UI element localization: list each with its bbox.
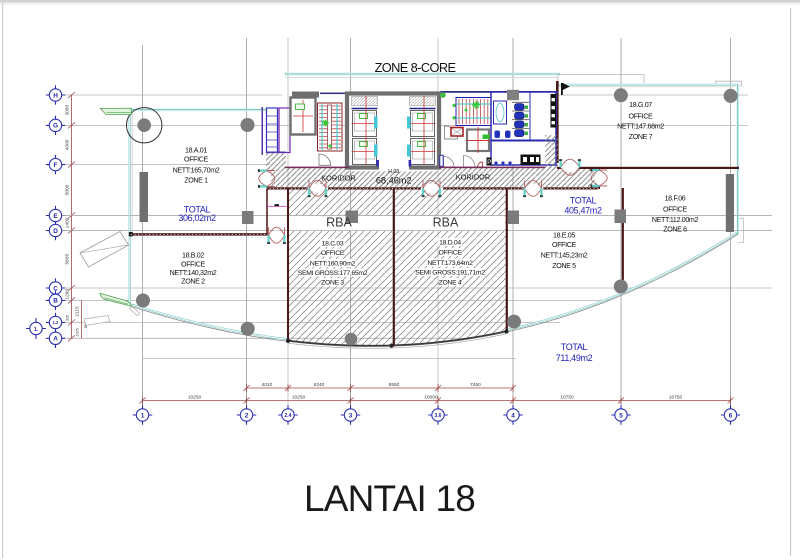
svg-text:SEMI GROSS:191,71m2: SEMI GROSS:191,71m2 — [415, 270, 485, 277]
svg-text:2.4: 2.4 — [285, 413, 292, 419]
svg-text:RBA: RBA — [326, 216, 352, 230]
svg-text:NETT:140,32m2: NETT:140,32m2 — [170, 269, 217, 277]
svg-text:4: 4 — [511, 412, 515, 419]
svg-text:ZONE 4: ZONE 4 — [439, 280, 462, 287]
svg-text:NETT:160,90m2: NETT:160,90m2 — [310, 261, 356, 268]
svg-text:6: 6 — [729, 412, 733, 419]
svg-text:TOTAL: TOTAL — [570, 195, 597, 205]
svg-text:ZONE 8-CORE: ZONE 8-CORE — [375, 60, 456, 75]
svg-text:KORIDOR: KORIDOR — [321, 173, 356, 182]
svg-text:H.08: H.08 — [388, 169, 399, 175]
svg-text:P: P — [487, 160, 491, 166]
svg-text:18.B.02: 18.B.02 — [182, 252, 204, 260]
svg-text:18.E.05: 18.E.05 — [553, 232, 575, 240]
svg-text:2115: 2115 — [75, 306, 81, 317]
svg-text:OFFICE: OFFICE — [663, 205, 688, 213]
svg-text:5000: 5000 — [65, 184, 71, 195]
svg-text:ZONE 7: ZONE 7 — [629, 133, 653, 141]
svg-text:711,49m2: 711,49m2 — [556, 353, 593, 363]
svg-text:RBA: RBA — [433, 216, 459, 230]
svg-text:6240: 6240 — [314, 382, 325, 388]
svg-text:18.F.06: 18.F.06 — [665, 195, 686, 203]
svg-text:10250: 10250 — [292, 395, 306, 401]
svg-text:1: 1 — [141, 412, 145, 419]
svg-text:ZONE 2: ZONE 2 — [181, 278, 205, 286]
svg-text:NETT:112.00m2: NETT:112.00m2 — [652, 216, 699, 224]
svg-text:10250: 10250 — [188, 395, 202, 401]
svg-text:10750: 10750 — [560, 395, 574, 401]
svg-text:18.C.03: 18.C.03 — [322, 241, 344, 248]
svg-text:LANTAI 18: LANTAI 18 — [304, 478, 475, 519]
svg-text:1.2: 1.2 — [53, 320, 59, 325]
svg-text:NETT:147.68m2: NETT:147.68m2 — [617, 123, 664, 131]
svg-text:1290: 1290 — [65, 289, 71, 300]
svg-text:1025: 1025 — [76, 328, 80, 336]
svg-text:OFFICE: OFFICE — [321, 250, 345, 257]
svg-text:NETT:145,23m2: NETT:145,23m2 — [541, 251, 588, 259]
svg-text:3.6: 3.6 — [435, 413, 442, 419]
svg-text:405,47m2: 405,47m2 — [564, 205, 602, 215]
svg-text:1400: 1400 — [65, 217, 71, 228]
svg-text:10750: 10750 — [669, 395, 683, 401]
svg-text:3000: 3000 — [65, 105, 71, 116]
svg-text:ZONE 3: ZONE 3 — [321, 280, 344, 287]
svg-text:ZONE 1: ZONE 1 — [184, 176, 208, 184]
svg-text:18.G.07: 18.G.07 — [629, 101, 652, 109]
svg-text:TOTAL: TOTAL — [561, 342, 588, 352]
svg-text:NETT:165,70m2: NETT:165,70m2 — [173, 167, 220, 175]
svg-text:4000: 4000 — [65, 139, 71, 150]
svg-text:16000: 16000 — [424, 395, 438, 401]
svg-text:F: F — [54, 162, 58, 169]
svg-text:2: 2 — [245, 412, 249, 419]
svg-text:325: 325 — [66, 315, 70, 321]
svg-text:18.A.01: 18.A.01 — [185, 147, 207, 155]
svg-text:4010: 4010 — [262, 382, 273, 388]
svg-text:H: H — [53, 92, 58, 99]
svg-text:5605: 5605 — [65, 254, 71, 265]
svg-text:A: A — [53, 336, 58, 343]
svg-text:E: E — [53, 213, 58, 220]
svg-text:D: D — [53, 228, 58, 235]
svg-text:OFFICE: OFFICE — [181, 260, 206, 268]
svg-text:OFFICE: OFFICE — [184, 156, 209, 164]
svg-text:OFFICE: OFFICE — [629, 112, 654, 120]
svg-text:G: G — [53, 123, 58, 130]
svg-text:68,46m2: 68,46m2 — [376, 176, 412, 186]
svg-text:NETT:173,64m2: NETT:173,64m2 — [427, 260, 473, 267]
svg-text:OFFICE: OFFICE — [438, 250, 462, 257]
svg-text:306,02m2: 306,02m2 — [178, 213, 216, 223]
svg-text:ZONE 5: ZONE 5 — [552, 262, 576, 270]
svg-text:5: 5 — [619, 412, 623, 419]
svg-text:ZONE 6: ZONE 6 — [663, 225, 687, 233]
svg-text:7450: 7450 — [470, 382, 481, 388]
svg-text:1.: 1. — [34, 327, 39, 333]
svg-text:3: 3 — [349, 412, 353, 419]
svg-text:B: B — [53, 298, 58, 305]
svg-text:18.D.04: 18.D.04 — [439, 240, 461, 247]
svg-text:OFFICE: OFFICE — [552, 241, 577, 249]
svg-text:KORIDOR: KORIDOR — [456, 172, 491, 181]
svg-text:SEMI GROSS:177,65m2: SEMI GROSS:177,65m2 — [298, 270, 368, 277]
svg-text:8550: 8550 — [389, 382, 400, 388]
